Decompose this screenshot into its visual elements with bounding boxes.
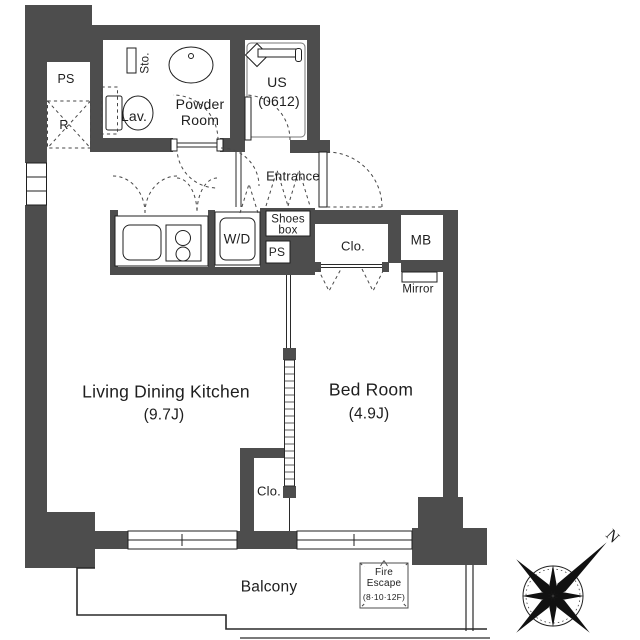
label-ldk-2: (9.7J): [144, 407, 185, 423]
wall-segment: [208, 210, 215, 267]
label-mirror: Mirror: [402, 284, 433, 296]
entrance-step-line: [236, 152, 241, 207]
label-shoes-box-2: box: [278, 225, 297, 237]
entrance-door-arc: [327, 152, 382, 207]
label-fire-escape-1: Fire: [375, 568, 393, 578]
label-powder-room-1: Powder: [176, 97, 225, 111]
wall-segment: [47, 34, 92, 62]
label-bed-room-1: Bed Room: [329, 381, 413, 399]
compass-point-se: [549, 592, 593, 636]
wd-door-fold: [240, 184, 258, 213]
wall-segment: [412, 528, 487, 565]
balcony-outline: [77, 568, 487, 629]
label-washer-dryer: W/D: [224, 232, 251, 246]
wall-segment: [240, 448, 285, 458]
door-jamb: [171, 139, 177, 151]
bath-shelf: [258, 49, 296, 57]
label-closet-lower: Clo.: [257, 485, 281, 498]
wall-segment: [25, 512, 95, 568]
label-unit-shower-1: US: [267, 75, 287, 89]
wall-segment: [92, 25, 320, 40]
balcony-divider: [466, 565, 473, 631]
label-refrigerator: R: [59, 119, 68, 132]
hall-door-arc: [221, 148, 259, 186]
storage-shelf: [127, 48, 136, 73]
partition-cap: [283, 348, 296, 360]
sliding-partition-hatch: [285, 367, 295, 479]
wall-segment: [220, 138, 245, 152]
compass-point-nw: [513, 556, 557, 600]
kitchen-sink: [123, 225, 161, 260]
label-pipe-space-hall: PS: [269, 246, 285, 258]
partition-line-upper: [287, 275, 291, 348]
compass-star: [513, 538, 611, 636]
label-meter-box: MB: [411, 233, 432, 247]
wall-segment: [418, 497, 463, 528]
wall-segment: [290, 140, 320, 153]
wall-segment: [388, 224, 401, 263]
faucet-icon: [296, 49, 302, 62]
compass-rose: [513, 538, 611, 636]
side-window: [27, 163, 47, 205]
mirror-bar: [402, 272, 437, 282]
toilet-tank: [106, 96, 122, 130]
closet-door-fold: [318, 269, 384, 291]
compass-needle-north: [549, 538, 611, 600]
partition-cap: [283, 486, 296, 498]
label-closet-upper: Clo.: [341, 240, 365, 253]
cabinet-door-arcs: [177, 178, 217, 213]
wall-segment: [237, 531, 297, 549]
floor-plan-drawing: [0, 0, 640, 640]
label-fire-escape-2: Escape: [367, 579, 402, 589]
label-balcony: Balcony: [241, 579, 298, 595]
wall-segment: [307, 25, 320, 153]
label-fire-escape-3: (8·10·12F): [363, 593, 405, 602]
label-entrance: Entrance: [266, 170, 320, 183]
label-lavatory: Lav.: [121, 109, 147, 123]
bath-door-leaf: [245, 97, 251, 140]
powder-door-track: [177, 143, 217, 147]
basin: [169, 47, 213, 83]
door-jamb: [217, 139, 223, 151]
wall-segment: [230, 40, 245, 152]
label-storage: Sto.: [140, 52, 152, 73]
label-bed-room-2: (4.9J): [349, 406, 390, 422]
floor-plan-page: PS Sto. Lav. Powder Room US (0612) R Ent…: [0, 0, 640, 640]
wall-segment: [90, 138, 173, 152]
label-powder-room-2: Room: [181, 113, 219, 127]
closet-sliding-track: [321, 265, 382, 268]
compass-point-sw: [513, 592, 557, 636]
wall-segment: [240, 448, 254, 543]
refrigerator-space-cross: [48, 101, 91, 148]
label-ldk-1: Living Dining Kitchen: [82, 383, 250, 401]
wall-segment: [25, 5, 47, 163]
wall-segment: [110, 267, 315, 275]
wall-segment: [443, 210, 458, 497]
wall-segment: [401, 260, 443, 272]
cabinet-door-arcs: [113, 176, 177, 213]
entrance-door-leaf: [319, 152, 327, 207]
hall-door-arc: [177, 148, 217, 188]
wall-segment: [314, 262, 321, 272]
label-unit-shower-2: (0612): [258, 94, 300, 108]
label-pipe-space-top: PS: [57, 73, 74, 86]
wall-segment: [25, 205, 47, 532]
